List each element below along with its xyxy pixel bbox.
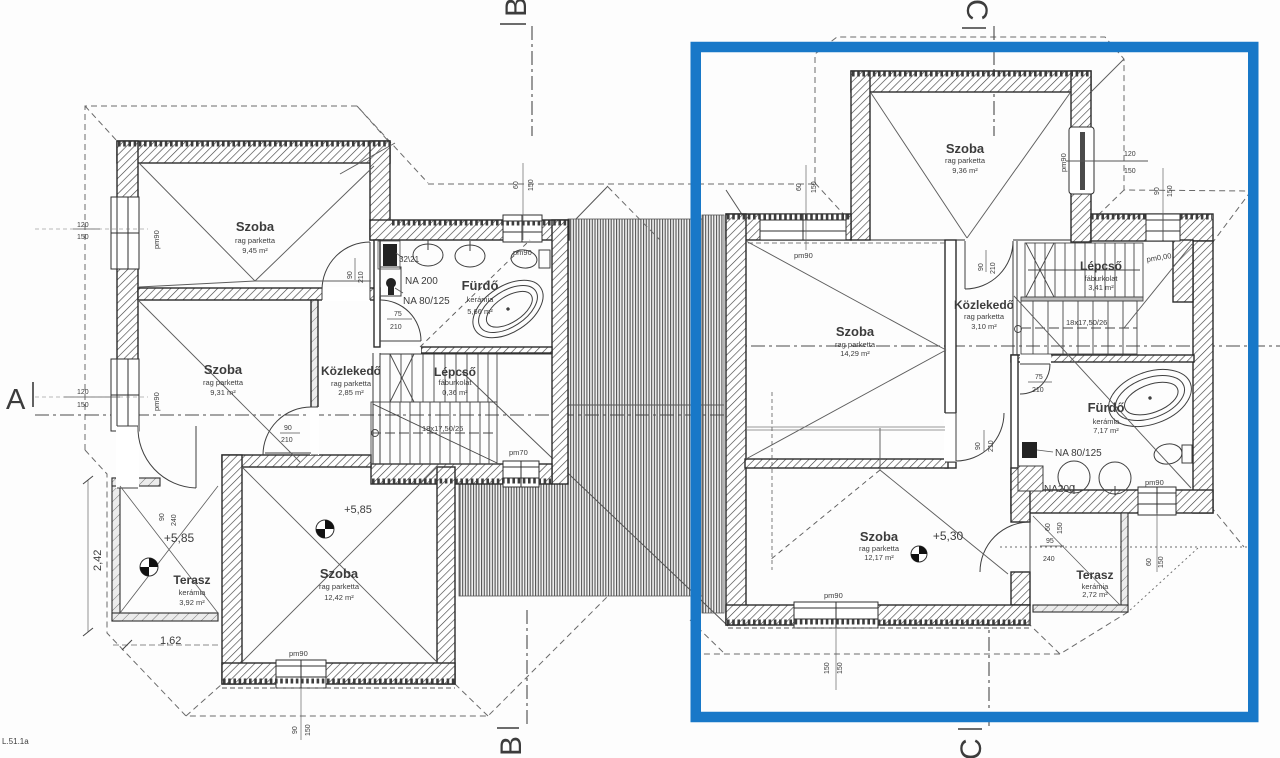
svg-text:pm90: pm90 [513,248,532,257]
svg-text:95: 95 [1046,538,1054,545]
svg-text:Szoba: Szoba [204,362,243,377]
svg-text:Lépcső: Lépcső [1080,259,1122,273]
svg-text:90: 90 [978,263,985,271]
svg-text:NA 80/125: NA 80/125 [1055,448,1102,459]
svg-text:18x17,50/26: 18x17,50/26 [422,424,463,433]
svg-text:60: 60 [796,183,803,191]
svg-text:Fürdő: Fürdő [1088,400,1125,415]
svg-text:150: 150 [1158,556,1165,568]
svg-text:pm70: pm70 [509,448,528,457]
svg-text:fáburkolat: fáburkolat [439,378,473,387]
svg-text:210: 210 [988,440,995,452]
svg-text:rag parketta: rag parketta [945,156,986,165]
svg-text:Közlekedő: Közlekedő [321,364,381,378]
svg-text:Terasz: Terasz [173,573,210,587]
svg-text:kerámia: kerámia [1093,417,1121,426]
svg-text:NA 80/125: NA 80/125 [403,296,450,307]
svg-text:150: 150 [1124,168,1136,175]
svg-text:240: 240 [171,514,178,526]
svg-text:150: 150 [77,402,89,409]
svg-text:150: 150 [528,179,535,191]
svg-text:9,36 m²: 9,36 m² [952,166,978,175]
svg-text:pm90: pm90 [794,251,813,260]
svg-text:2,72 m²: 2,72 m² [1082,590,1108,599]
svg-text:C: C [960,0,993,21]
svg-text:0,36 m²: 0,36 m² [442,388,468,397]
svg-text:150: 150 [305,724,312,736]
svg-text:rag parketta: rag parketta [331,379,372,388]
svg-text:90: 90 [347,271,354,279]
svg-text:L.51.1a: L.51.1a [2,737,29,746]
svg-text:NA 200: NA 200 [405,276,438,287]
svg-text:60: 60 [1045,523,1052,531]
svg-text:+5,85: +5,85 [344,504,372,516]
svg-text:210: 210 [990,262,997,274]
svg-text:pm90: pm90 [289,649,308,658]
svg-text:90: 90 [159,513,166,521]
svg-text:150: 150 [824,662,831,674]
svg-text:rag parketta: rag parketta [203,378,244,387]
svg-text:Fürdő: Fürdő [462,278,499,293]
svg-text:Szoba: Szoba [946,141,985,156]
svg-text:pm90: pm90 [824,591,843,600]
svg-text:5,66 m²: 5,66 m² [467,307,493,316]
svg-text:kerámia: kerámia [179,588,207,597]
svg-text:+5,30: +5,30 [933,529,964,543]
svg-text:90: 90 [292,726,299,734]
svg-text:90: 90 [284,425,292,432]
svg-text:240: 240 [1043,556,1055,563]
svg-text:12,42 m²: 12,42 m² [324,593,354,602]
svg-text:150: 150 [837,662,844,674]
svg-text:C: C [955,738,988,758]
svg-text:150: 150 [811,181,818,193]
svg-text:A: A [6,384,26,416]
svg-text:9,45 m²: 9,45 m² [242,246,268,255]
svg-text:Szoba: Szoba [320,566,359,581]
svg-text:7,17 m²: 7,17 m² [1093,426,1119,435]
svg-text:75: 75 [394,311,402,318]
svg-text:210: 210 [281,437,293,444]
svg-text:60: 60 [1146,558,1153,566]
svg-text:Szoba: Szoba [860,529,899,544]
svg-text:B: B [495,736,528,756]
svg-text:60: 60 [513,181,520,189]
svg-text:32\21: 32\21 [399,255,420,264]
svg-text:Szoba: Szoba [236,219,275,234]
svg-text:210: 210 [1032,387,1044,394]
svg-text:rag parketta: rag parketta [859,544,900,553]
svg-text:9,31 m²: 9,31 m² [210,388,236,397]
svg-text:Lépcső: Lépcső [434,365,476,379]
svg-text:fáburkolat: fáburkolat [1085,274,1119,283]
svg-text:2,42: 2,42 [92,550,104,571]
svg-text:90: 90 [1154,187,1161,195]
svg-text:210: 210 [358,271,365,283]
svg-text:12,17 m²: 12,17 m² [864,553,894,562]
svg-text:14,29 m²: 14,29 m² [840,349,870,358]
svg-text:rag parketta: rag parketta [235,236,276,245]
svg-text:120: 120 [77,389,89,396]
svg-text:90: 90 [975,442,982,450]
svg-text:Terasz: Terasz [1076,568,1113,582]
svg-text:2,85 m²: 2,85 m² [338,388,364,397]
svg-text:Szoba: Szoba [836,324,875,339]
svg-text:Közlekedő: Közlekedő [954,298,1014,312]
svg-text:rag parketta: rag parketta [319,582,360,591]
svg-text:150: 150 [77,234,89,241]
svg-text:B: B [500,0,533,17]
svg-text:18x17,50/26: 18x17,50/26 [1066,318,1107,327]
svg-text:NA200: NA200 [1044,484,1075,495]
svg-text:120: 120 [1124,151,1136,158]
svg-text:3,10 m²: 3,10 m² [971,322,997,331]
svg-text:3,41 m²: 3,41 m² [1088,283,1114,292]
svg-text:150: 150 [1057,522,1064,534]
svg-text:3,92 m²: 3,92 m² [179,598,205,607]
svg-text:pm90: pm90 [1145,478,1164,487]
svg-text:kerámia: kerámia [467,295,495,304]
svg-text:+5,85: +5,85 [164,531,195,545]
svg-text:210: 210 [390,324,402,331]
svg-text:rag parketta: rag parketta [835,340,876,349]
svg-text:rag parketta: rag parketta [964,312,1005,321]
svg-text:pm90: pm90 [152,230,161,249]
svg-text:pm90: pm90 [1059,153,1068,172]
svg-text:150: 150 [1167,185,1174,197]
svg-text:pm90: pm90 [152,392,161,411]
svg-text:120: 120 [77,222,89,229]
svg-text:75: 75 [1035,374,1043,381]
